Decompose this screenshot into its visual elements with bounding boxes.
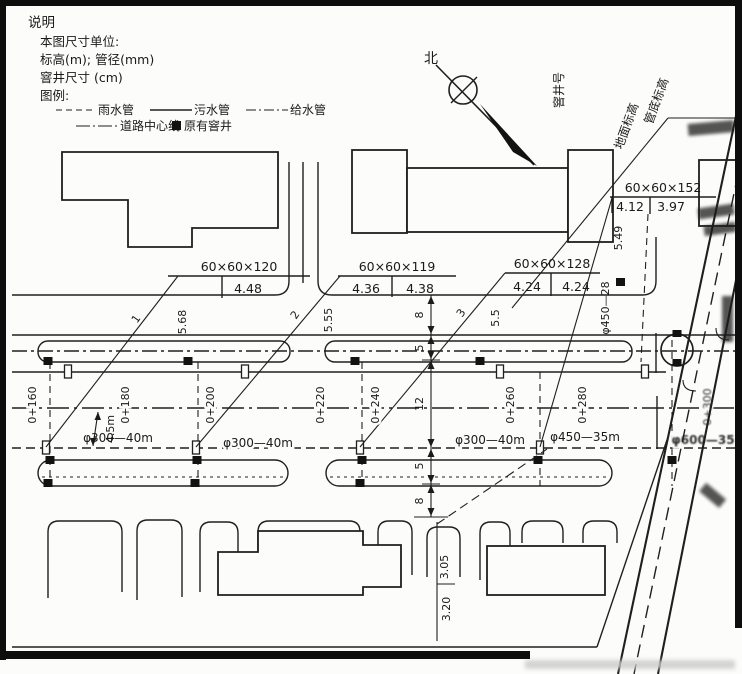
pipe-label: φ300—40m [455, 433, 525, 447]
station-label: 0+180 [119, 386, 132, 423]
drawing-page: 60×60×120 4.48 1 5.68 60×60×119 4.36 4.3… [0, 0, 742, 674]
branch-upper-value: 3.05 [438, 555, 451, 580]
dim-strip-top: 5 [413, 345, 426, 352]
callout-3-invert-right: 4.24 [562, 279, 590, 294]
legend-water-label: 给水管 [290, 102, 326, 117]
branch-pipe-label: φ450—28 [599, 281, 612, 334]
existing-manhole-icon [191, 479, 200, 487]
building-top-mid-right-block [568, 150, 613, 242]
manhole-number-key-label: 窨井号 [551, 72, 566, 108]
new-manhole-icon [357, 441, 364, 454]
notes-line-elev: 标高(m); 管径(mm) [40, 52, 154, 67]
new-manhole-icon [193, 441, 200, 454]
callout-2-invert-right: 4.38 [406, 281, 434, 296]
station-label: 0+240 [369, 386, 382, 423]
callout-4-size: 60×60×152 [625, 180, 702, 195]
building-top-mid-left-block [352, 150, 407, 233]
notes-line-manhole-size: 窨井尺寸 (cm) [40, 70, 123, 85]
notes-heading: 说明 [28, 15, 55, 31]
notes-line-units: 本图尺寸单位: [40, 34, 119, 49]
existing-manhole-icon [356, 479, 365, 487]
station-label: 0+160 [26, 386, 39, 423]
callout-4-invert-left: 4.12 [616, 199, 644, 214]
notes-line-legend: 图例: [40, 88, 69, 103]
existing-manhole-icon [46, 456, 55, 464]
legend-existing-manhole-label: 原有窨井 [184, 118, 232, 133]
existing-manhole-icon [668, 456, 677, 464]
new-manhole-icon [242, 365, 249, 378]
station-label: 0+260 [504, 386, 517, 423]
dim-sidewalk-bottom: 8 [413, 498, 426, 505]
existing-manhole-icon [673, 359, 682, 366]
existing-manhole-icon [44, 479, 53, 487]
callout-4-ground: 5.49 [612, 226, 625, 251]
new-manhole-icon [642, 365, 649, 378]
existing-manhole-legend-icon [172, 121, 181, 130]
dim-carriageway: 12 [413, 397, 426, 411]
callout-3-invert-left: 4.24 [513, 279, 541, 294]
callout-1-ground: 5.68 [176, 310, 189, 335]
existing-manhole-icon [476, 357, 485, 365]
plan-drawing: 60×60×120 4.48 1 5.68 60×60×119 4.36 4.3… [0, 0, 742, 674]
building-top-mid-bar [407, 168, 568, 232]
building-bottom-right [487, 546, 605, 595]
new-manhole-icon [497, 365, 504, 378]
branch-lower-value: 3.20 [440, 597, 453, 622]
dim-strip-bottom: 5 [413, 463, 426, 470]
callout-3-size: 60×60×128 [514, 256, 591, 271]
existing-manhole-icon [673, 330, 682, 337]
existing-manhole-icon [358, 456, 367, 464]
existing-manhole-icon [616, 278, 625, 286]
station-label: 0+200 [204, 386, 217, 423]
callout-1-invert: 4.48 [234, 281, 262, 296]
north-label: 北 [424, 51, 438, 67]
callout-1-size: 60×60×120 [201, 259, 278, 274]
callout-2-invert-left: 4.36 [352, 281, 380, 296]
callout-2-ground: 5.55 [322, 308, 335, 333]
station-label: 0+280 [576, 386, 589, 423]
station-label: 0+220 [314, 386, 327, 423]
existing-manhole-icon [184, 357, 193, 365]
callout-2-size: 60×60×119 [359, 259, 436, 274]
existing-manhole-icon [193, 456, 202, 464]
callout-3-ground: 5.5 [489, 309, 502, 327]
pipe-label: φ300—40m [223, 436, 293, 450]
new-manhole-icon [65, 365, 72, 378]
existing-manhole-icon [44, 357, 53, 365]
existing-manhole-icon [351, 357, 360, 365]
legend-rain-label: 雨水管 [98, 102, 134, 117]
callout-4-invert-right: 3.97 [657, 199, 685, 214]
offset-depth-label: 4.5m [104, 415, 117, 443]
legend-centerline-label: 道路中心线 [120, 118, 180, 133]
dim-sidewalk-top: 8 [413, 312, 426, 319]
legend-sewage-label: 污水管 [194, 102, 230, 117]
pipe-label: φ450—35m [550, 430, 620, 444]
